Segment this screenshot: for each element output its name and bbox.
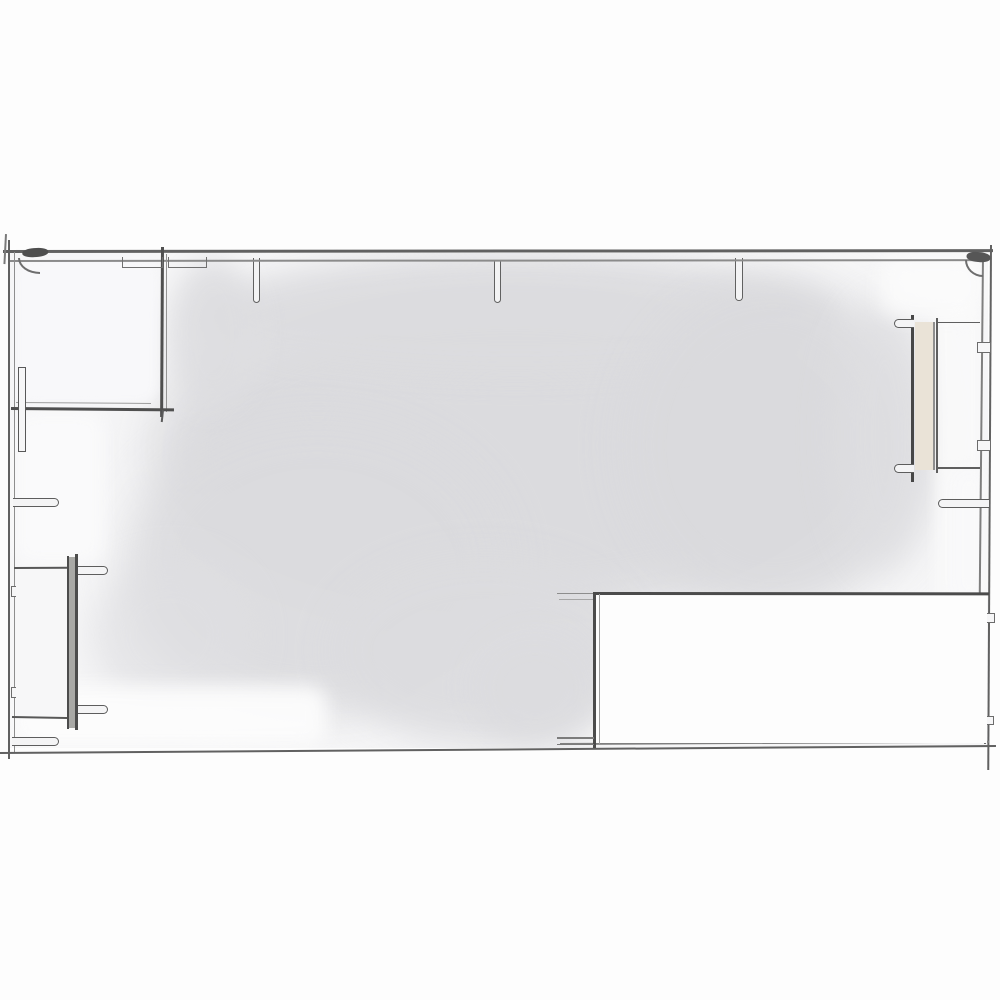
room1-wall-horizontal-double (16, 402, 151, 404)
wall-tab-right-2 (977, 440, 991, 451)
column-stub-top-3 (735, 258, 743, 301)
opening-bracket-right (168, 257, 207, 268)
threshold-tick-top-b (559, 599, 593, 600)
wall-left-outer (8, 240, 10, 759)
door-stub-right-top (894, 319, 914, 328)
room1-wall-overshoot (161, 410, 164, 422)
wall-bottom-outer (0, 745, 996, 754)
area-br-top-edge (593, 592, 989, 595)
door-stub-left-1 (13, 498, 59, 508)
area-br-left-edge-double (599, 594, 600, 744)
room1-wall-horizontal (11, 407, 174, 411)
room2-wall-top (14, 567, 68, 569)
column-stub-top-1 (253, 258, 261, 303)
wall-right-inner (979, 256, 984, 608)
opening-bracket-left (122, 257, 163, 268)
area-br-fill (596, 594, 987, 743)
door2-panel-edge (933, 322, 935, 470)
threshold-tick-bottom-a (557, 737, 594, 739)
corner-arc-tl (18, 258, 40, 274)
room1-wall-vertical-double (166, 254, 167, 412)
sketch-line-layer (0, 0, 1000, 1000)
door-leaf-left (18, 367, 26, 452)
room2-bar-right-line (75, 554, 77, 730)
door-stub-right-bottom (894, 464, 914, 473)
door2-bottom-line (937, 467, 980, 469)
room2-fill (16, 569, 67, 716)
wall-tab-right-1 (977, 342, 991, 353)
area-br-left-edge (593, 592, 596, 748)
door2-jamb-line (911, 315, 914, 482)
wall-top-outer (3, 249, 993, 252)
door-stub-bl-2 (78, 705, 108, 714)
door-stub-right-mid (938, 499, 989, 509)
corner-knot-tl (22, 247, 49, 258)
door2-panel (915, 322, 934, 470)
room2-wall-bottom (12, 716, 74, 719)
wall-left-overshoot (3, 234, 6, 264)
threshold-tick-top-a (557, 593, 593, 595)
door2-top-line (937, 322, 980, 324)
room1-wall-vertical (160, 247, 164, 417)
room2-bar-left-line (67, 556, 69, 729)
door2-inner-line (936, 318, 938, 473)
column-stub-top-2 (494, 260, 502, 303)
door-stub-bl-1 (78, 566, 108, 575)
threshold-tick-bottom-b (557, 744, 594, 746)
door-stub-left-2 (12, 737, 59, 746)
floor-plan-canvas (0, 0, 1000, 1000)
corner-arc-tr (965, 260, 983, 277)
